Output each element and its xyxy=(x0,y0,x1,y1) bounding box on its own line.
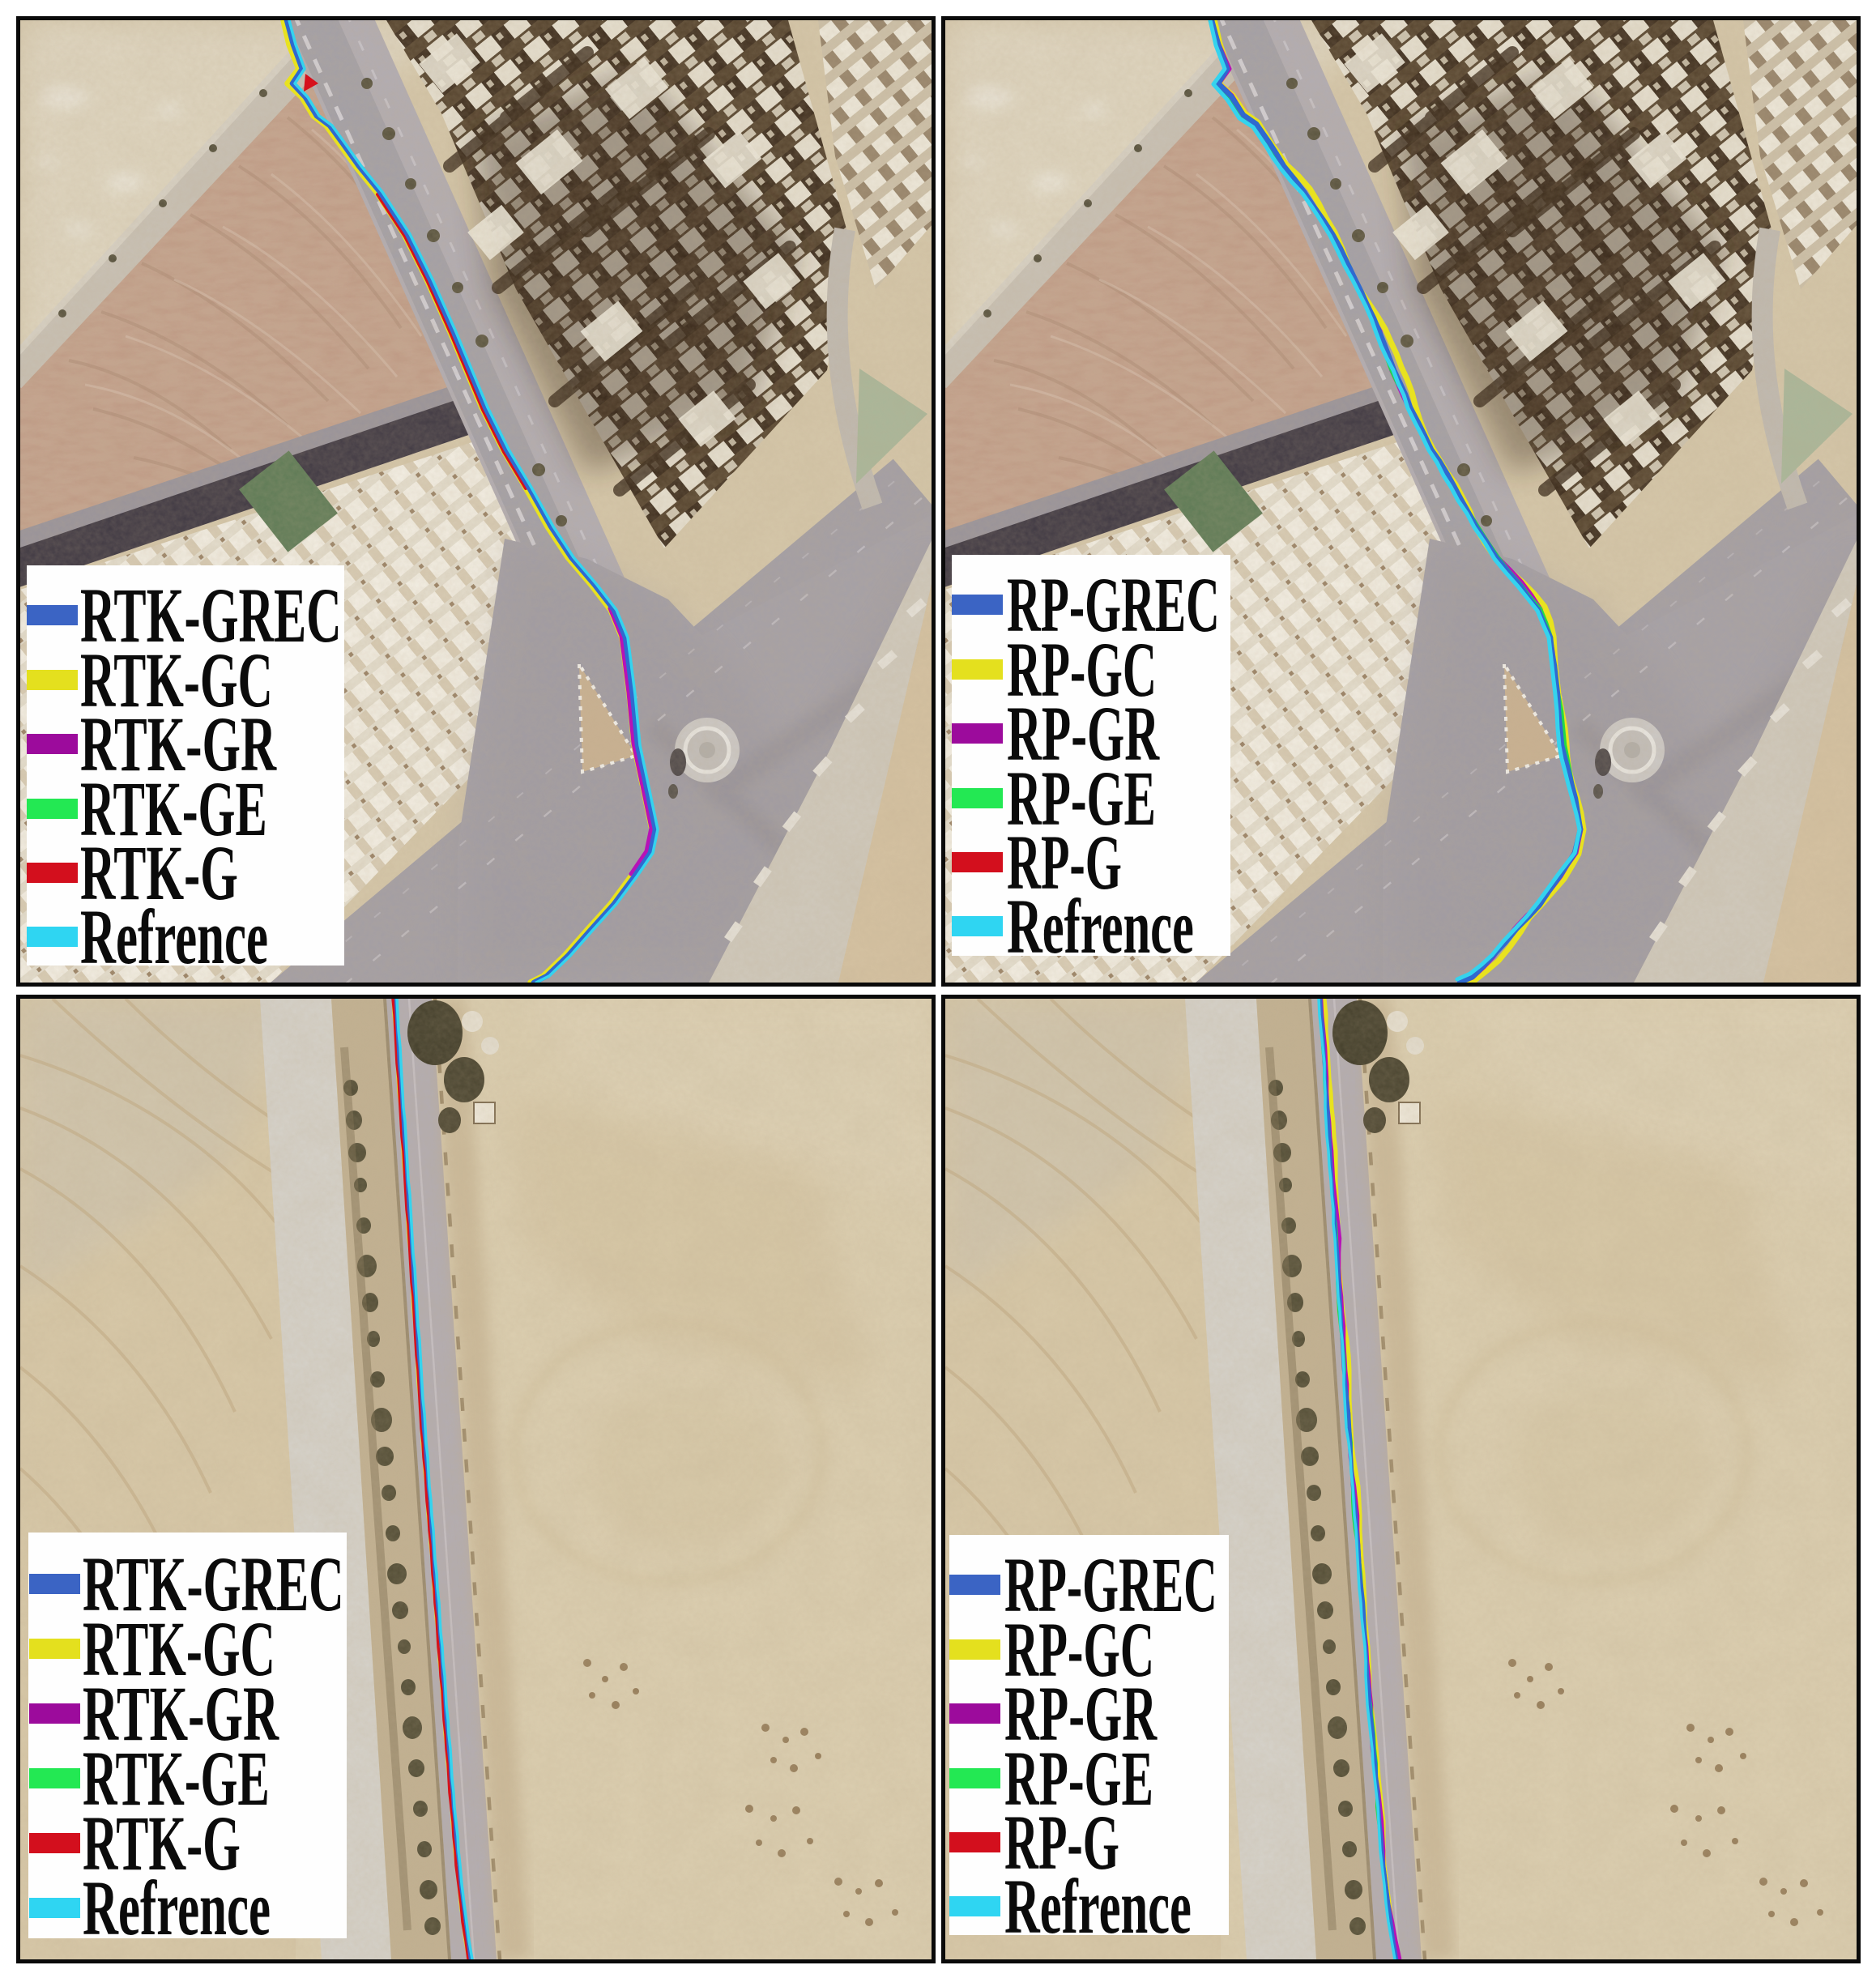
svg-text:Refrence: Refrence xyxy=(83,1865,271,1951)
svg-text:Refrence: Refrence xyxy=(80,894,268,980)
svg-text:Refrence: Refrence xyxy=(1004,1864,1192,1950)
svg-text:Refrence: Refrence xyxy=(1007,884,1194,970)
